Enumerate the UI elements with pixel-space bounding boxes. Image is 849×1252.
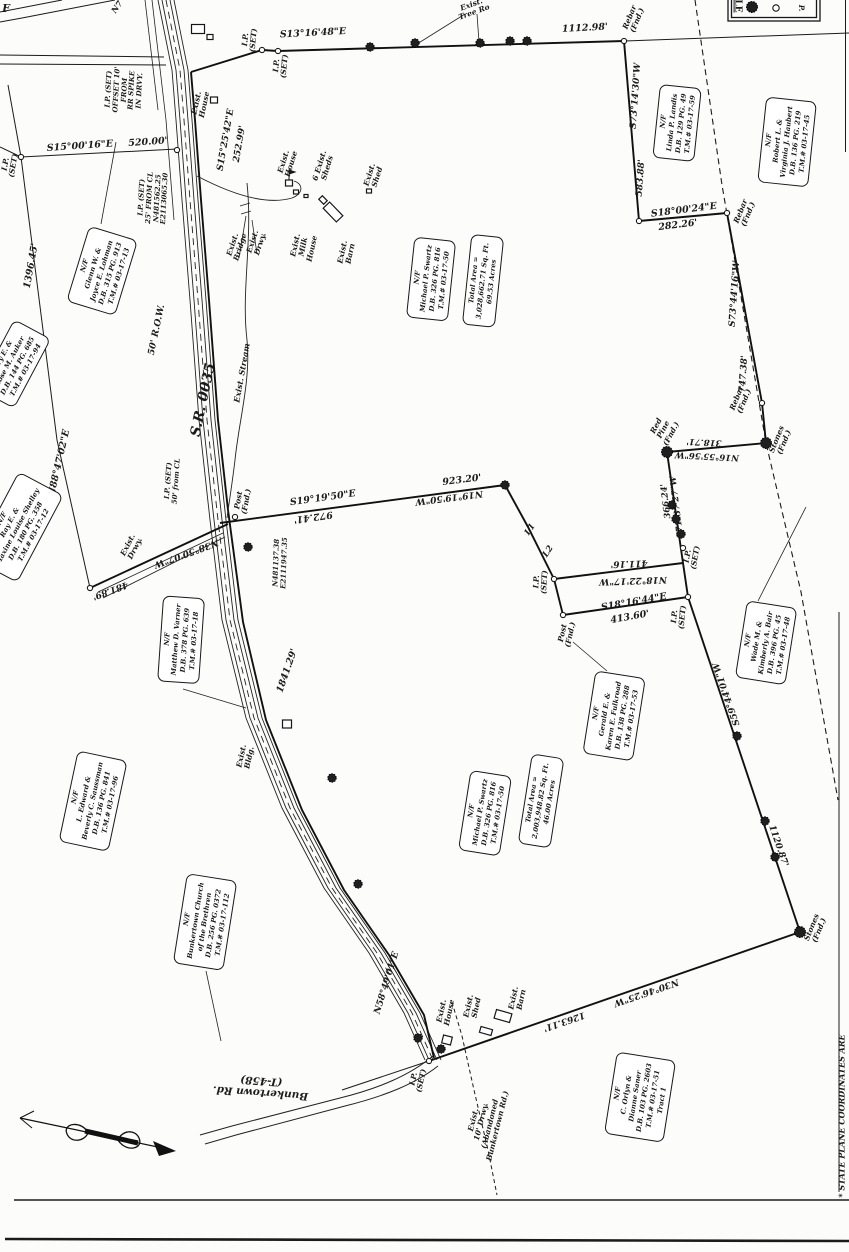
buildings	[192, 25, 512, 1045]
building-symbol	[294, 190, 299, 194]
tree-symbol	[523, 37, 531, 45]
monument-point	[87, 585, 92, 590]
label-ip_set_t1: I.P.(SET)	[241, 27, 260, 52]
label-milk: Exist.MilkHouse	[289, 231, 319, 262]
tree-symbol	[506, 37, 514, 45]
building-symbol	[192, 25, 205, 34]
survey-plat-sheet: LE FN7Exist.Tree RoS13°16'48"E1112.98'Re…	[0, 0, 849, 1252]
building-symbol	[319, 196, 327, 205]
building-symbol	[367, 189, 372, 193]
building-symbol	[211, 97, 218, 103]
label-ip_set_c2: I.P.(SET)	[670, 604, 689, 629]
monument-point	[259, 47, 264, 52]
monument-point	[560, 612, 565, 617]
tree-symbol	[662, 447, 673, 458]
monument-point	[232, 514, 237, 519]
tree-symbol	[366, 43, 374, 51]
parcel-box-swartz1: N/FMichael P. SwartzD.B. 326 PG. 816T.M.…	[406, 236, 456, 321]
building-symbol	[494, 1009, 512, 1022]
tree-symbol	[501, 481, 509, 489]
tree-symbol	[437, 1045, 445, 1053]
tree-symbols	[244, 37, 806, 1053]
building-symbol	[286, 180, 293, 186]
north-arrow-head	[153, 1141, 176, 1156]
label-ip_set_t2: I.P.(SET)	[272, 53, 291, 78]
monument-point	[174, 147, 179, 152]
parcel-box-varner: N/FMatthew D. VarnerD.B. 378 PG. 639T.M.…	[157, 596, 205, 684]
building-symbol	[442, 1035, 453, 1045]
label-f_partial: F	[2, 3, 10, 15]
tree-symbol	[476, 39, 484, 47]
label-ip_block_offset: I.P. (SET)OFFSET 10'FROMRR SPIKEIN DRVY.	[103, 66, 144, 114]
label-ip_50cl: I.P. (SET)50' from CL	[163, 457, 182, 504]
monument-point	[551, 576, 556, 581]
tree-symbol	[733, 732, 741, 740]
legend-monument-symbol	[773, 5, 779, 11]
tree-symbol	[328, 774, 336, 782]
label-b_n16: N16°55'56"W	[675, 449, 740, 462]
parcel-box-landis: N/FLinda P. LandisD.B. 129 PG. 49T.M.# 0…	[652, 84, 701, 162]
label-ip_set_c1: I.P.(SET)	[532, 570, 550, 595]
building-symbol	[304, 195, 308, 198]
legend-title: LE	[733, 0, 743, 13]
label-legend_p: P.	[797, 5, 805, 12]
tree-symbol	[411, 39, 419, 47]
monument-point	[636, 218, 641, 223]
building-symbol	[323, 202, 343, 222]
monument-point	[426, 1058, 431, 1063]
label-coords2: N481137.38E2111947.35	[271, 537, 288, 589]
building-symbol	[479, 1026, 492, 1035]
monument-point	[685, 594, 690, 599]
monument-point	[621, 38, 626, 43]
plat-linework	[0, 0, 849, 1252]
tree-symbol	[244, 543, 252, 551]
parcel-box-haubert: N/FRobert L. &Virginia J. HaubertD.B. 13…	[757, 97, 817, 188]
label-ip_block_25: I.P. (SET)25' FROM CLN481562.25E2113065.…	[136, 171, 170, 224]
building-symbol	[283, 720, 292, 728]
monument-point	[724, 210, 729, 215]
monument-point	[759, 400, 764, 405]
label-d_318: 318.71'	[686, 435, 722, 446]
label-d_411: 411.16'	[610, 557, 648, 568]
north-arrow	[20, 1111, 176, 1156]
label-stateplane: * STATE PLANE COORDINATES ARE	[838, 1034, 847, 1197]
tree-symbol	[761, 817, 769, 825]
road-bunkertown	[200, 1056, 438, 1144]
tree-symbol	[354, 880, 362, 888]
legend-tree-symbol	[747, 2, 758, 13]
building-symbol	[207, 35, 213, 40]
tree-symbol	[414, 1034, 422, 1042]
